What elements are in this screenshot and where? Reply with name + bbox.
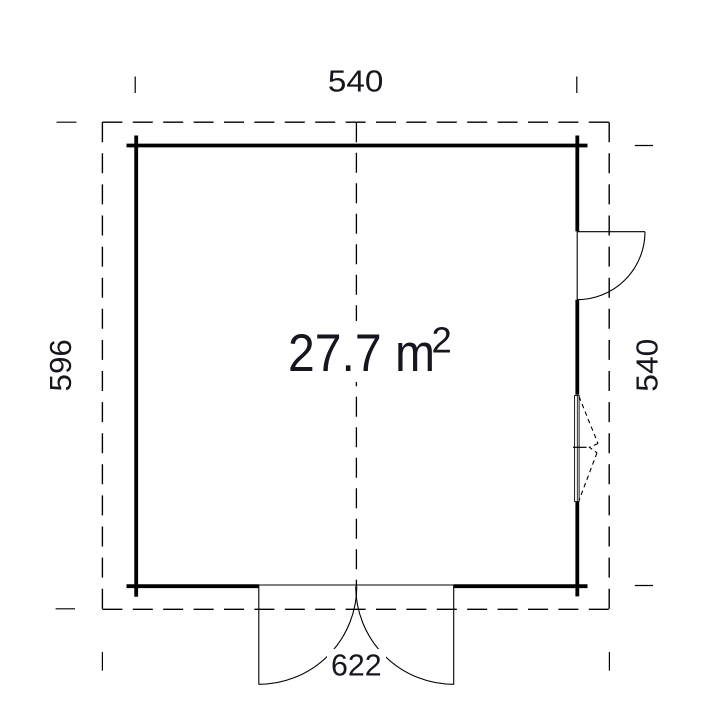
svg-text:2: 2: [432, 320, 452, 361]
svg-text:596: 596: [43, 339, 78, 391]
svg-text:622: 622: [331, 648, 382, 683]
svg-text:27.7 m: 27.7 m: [288, 324, 435, 383]
svg-text:540: 540: [328, 64, 384, 99]
svg-text:540: 540: [630, 339, 665, 392]
